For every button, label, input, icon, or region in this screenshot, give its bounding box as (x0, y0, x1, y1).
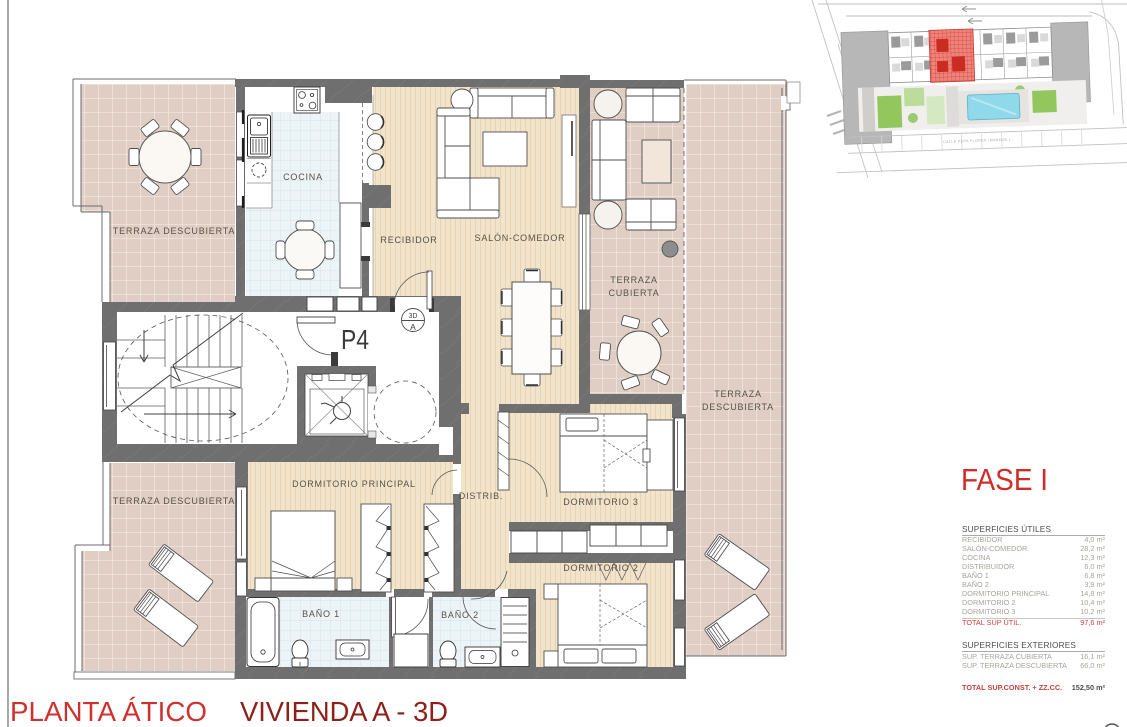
svg-text:SALÓN-COMEDOR: SALÓN-COMEDOR (475, 233, 566, 243)
svg-text:COCINA: COCINA (283, 172, 323, 182)
svg-text:RECIBIDOR: RECIBIDOR (962, 535, 1003, 544)
svg-text:DORMITORIO PRINCIPAL: DORMITORIO PRINCIPAL (962, 589, 1049, 598)
svg-text:DISTRIBUIDOR: DISTRIBUIDOR (962, 562, 1014, 571)
svg-text:DESCUBIERTA: DESCUBIERTA (702, 402, 774, 412)
svg-text:PLANTA ÁTICO: PLANTA ÁTICO (10, 696, 207, 727)
svg-text:P4: P4 (341, 324, 369, 355)
svg-text:BAÑO 2: BAÑO 2 (441, 610, 479, 620)
svg-text:3,9 m²: 3,9 m² (1084, 580, 1105, 589)
svg-text:SALÓN-COMEDOR: SALÓN-COMEDOR (962, 544, 1027, 553)
svg-text:A: A (410, 322, 416, 332)
svg-text:152,50 m²: 152,50 m² (1072, 683, 1106, 692)
svg-text:FASE I: FASE I (961, 462, 1048, 497)
svg-text:DORMITORIO 3: DORMITORIO 3 (962, 607, 1015, 616)
svg-text:RECIBIDOR: RECIBIDOR (380, 235, 437, 245)
svg-text:DORMITORIO 2: DORMITORIO 2 (563, 563, 638, 573)
svg-text:SUP. TERRAZA CUBIERTA: SUP. TERRAZA CUBIERTA (962, 652, 1052, 661)
svg-text:12,3 m²: 12,3 m² (1080, 553, 1105, 562)
svg-text:VIVIENDA A - 3D: VIVIENDA A - 3D (240, 696, 448, 727)
svg-text:BAÑO 1: BAÑO 1 (962, 571, 989, 580)
svg-text:SUP. TERRAZA DESCUBIERTA: SUP. TERRAZA DESCUBIERTA (962, 661, 1067, 670)
svg-text:TERRAZA: TERRAZA (714, 389, 762, 399)
svg-text:BAÑO 2: BAÑO 2 (962, 580, 989, 589)
svg-text:BAÑO 1: BAÑO 1 (302, 609, 340, 619)
svg-text:DORMITORIO PRINCIPAL: DORMITORIO PRINCIPAL (292, 479, 416, 489)
svg-text:COCINA: COCINA (962, 553, 991, 562)
svg-text:14,8 m²: 14,8 m² (1080, 589, 1105, 598)
svg-text:10,2 m²: 10,2 m² (1080, 607, 1105, 616)
svg-text:66,0 m²: 66,0 m² (1080, 661, 1105, 670)
svg-text:TERRAZA DESCUBIERTA: TERRAZA DESCUBIERTA (113, 226, 235, 236)
svg-text:DORMITORIO 2: DORMITORIO 2 (962, 598, 1015, 607)
svg-text:3D: 3D (409, 313, 418, 320)
svg-text:97,6 m²: 97,6 m² (1080, 618, 1105, 627)
svg-text:4,0 m²: 4,0 m² (1084, 535, 1105, 544)
svg-text:SUPERFICIES EXTERIORES: SUPERFICIES EXTERIORES (962, 641, 1076, 650)
svg-text:6,8 m²: 6,8 m² (1084, 571, 1105, 580)
svg-text:TERRAZA DESCUBIERTA: TERRAZA DESCUBIERTA (113, 496, 235, 506)
svg-text:TERRAZA: TERRAZA (610, 275, 658, 285)
svg-text:6,0 m²: 6,0 m² (1084, 562, 1105, 571)
svg-text:DORMITORIO 3: DORMITORIO 3 (563, 497, 638, 507)
svg-text:DISTRIB.: DISTRIB. (459, 491, 503, 501)
svg-text:SUPERFICIES ÚTILES: SUPERFICIES ÚTILES (962, 524, 1051, 534)
svg-text:TOTAL SUP.CONST. + ZZ.CC.: TOTAL SUP.CONST. + ZZ.CC. (962, 683, 1062, 692)
svg-text:TOTAL SUP ÚTIL.: TOTAL SUP ÚTIL. (962, 618, 1021, 627)
svg-text:28,2 m²: 28,2 m² (1080, 544, 1105, 553)
svg-text:16,1 m²: 16,1 m² (1080, 652, 1105, 661)
svg-text:10,4 m²: 10,4 m² (1080, 598, 1105, 607)
svg-text:CUBIERTA: CUBIERTA (608, 288, 659, 298)
